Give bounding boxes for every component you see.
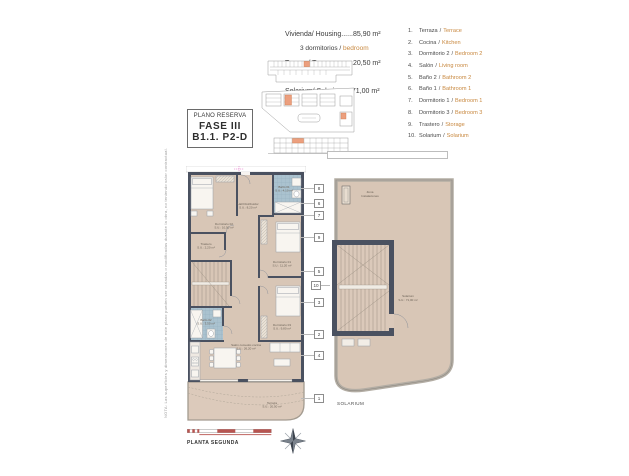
kitchen-counter	[190, 342, 200, 380]
label-salon-area: S.U.: 26,20 m²	[236, 347, 255, 351]
callout-10: 10	[311, 281, 330, 290]
upper-structure-band	[186, 166, 306, 172]
label-solarium-area: S.U.: 71,00 m²	[398, 298, 417, 302]
legend-item-8: 8.Dormitorio 3/Bedroom 3	[408, 110, 482, 122]
reserve-stamp: PLANO RESERVA FASE III B1.1. P2-D	[187, 109, 253, 148]
callout-tag: 9	[314, 233, 324, 242]
callout-tag: 1	[314, 394, 324, 403]
highlight-unit-b	[285, 95, 292, 105]
wardrobe-dorm3	[261, 316, 267, 338]
compass-icon	[280, 428, 306, 454]
legend-item-7: 7.Dormitorio 1/Bedroom 1	[408, 98, 482, 110]
callout-tag: 4	[314, 351, 324, 360]
disclaimer-note: NOTA: Las superficies y dimensiones de e…	[163, 88, 168, 418]
label-trastero-area: S.U.: 2,20 m²	[197, 246, 215, 250]
bedrooms-es: 3 dormitorios /	[300, 45, 343, 52]
callout-4: 4	[301, 351, 324, 360]
legend-item-6: 6.Baño 1/Bathroom 1	[408, 86, 482, 98]
callout-7: 7	[301, 211, 324, 220]
callout-tag: 2	[314, 330, 324, 339]
label-bath2-area: S.U.: 3,50 m²	[197, 322, 215, 326]
callout-tag: 5	[314, 267, 324, 276]
bed-dorm1	[276, 222, 300, 252]
stamp-title: PLANO RESERVA	[190, 113, 250, 119]
label-terraza-area: S.U.: 20,50 m²	[262, 405, 281, 409]
legend-item-2: 2.Cocina/Kitchen	[408, 40, 482, 52]
callout-3: 3	[301, 298, 324, 307]
label-dorm1-area: S.U.: 11,20 m²	[272, 264, 291, 268]
legend-item-3: 3.Dormitorio 2/Bedroom 2	[408, 51, 482, 63]
stamp-unit: B1.1. P2-D	[190, 132, 250, 143]
main-floor-plan: Dormitorio 02 S.U.: 10,50 m² Hall Distri…	[186, 166, 306, 428]
stamp-phase: FASE III	[190, 121, 250, 132]
floor-caption: PLANTA SEGUNDA	[187, 440, 239, 446]
callout-tag: 7	[314, 211, 324, 220]
legend-item-4: 4.Salón/Living room	[408, 63, 482, 75]
wardrobe-dorm2	[216, 176, 234, 182]
legend-item-10: 10.Solarium/Solarium	[408, 133, 482, 145]
solarium-plan: Zona Instalaciones Solarium S.U.: 71,00 …	[330, 164, 458, 399]
area-line-housing: Vivienda/ Housing......85,90 m²	[285, 30, 381, 40]
label-zona-2: Instalaciones	[361, 194, 379, 198]
scale-bar	[187, 429, 273, 437]
label-bath1-area: S.U.: 4,10 m²	[275, 189, 293, 193]
label-hall-area: S.U.: 8,20 m²	[239, 206, 257, 210]
key-plan-site	[262, 88, 354, 132]
dining-table	[210, 348, 241, 368]
callout-8: 8	[301, 184, 324, 193]
legend-item-5: 5.Baño 2/Bathroom 2	[408, 75, 482, 87]
callout-tag: 8	[314, 184, 324, 193]
key-plan-level	[268, 61, 352, 82]
room-legend: 1.Terraza/Terrace 2.Cocina/Kitchen 3.Dor…	[408, 28, 482, 145]
terrace-floor	[188, 382, 304, 420]
callout-6: 6	[301, 199, 324, 208]
bedrooms-line: 3 dormitorios / bedroom	[300, 45, 369, 52]
highlight-unit-b2	[341, 113, 346, 119]
key-plans	[256, 58, 360, 156]
callout-2: 2	[301, 330, 324, 339]
callout-1: 1	[301, 394, 324, 403]
label-dorm3-area: S.U.: 9,80 m²	[273, 327, 291, 331]
legend-item-1: 1.Terraza/Terrace	[408, 28, 482, 40]
installations-shaft	[342, 186, 350, 204]
highlight-unit-c	[293, 139, 304, 144]
bedrooms-en: bedroom	[343, 45, 369, 52]
wardrobe-dorm1	[261, 220, 267, 244]
callout-5: 5	[301, 267, 324, 276]
callout-tag: 6	[314, 199, 324, 208]
callout-9: 9	[301, 233, 324, 242]
bed-dorm3	[276, 286, 300, 316]
callout-tag: 3	[314, 298, 324, 307]
legend-item-9: 9.Trastero/Storage	[408, 122, 482, 134]
label-dorm2-area: S.U.: 10,50 m²	[214, 226, 233, 230]
highlight-unit-a	[304, 61, 310, 66]
plan-sheet: NOTA: Las superficies y dimensiones de e…	[0, 0, 629, 476]
solarium-upper-band	[327, 151, 448, 159]
callout-tag: 10	[311, 281, 321, 290]
solarium-caption: SOLARIUM	[337, 401, 364, 406]
